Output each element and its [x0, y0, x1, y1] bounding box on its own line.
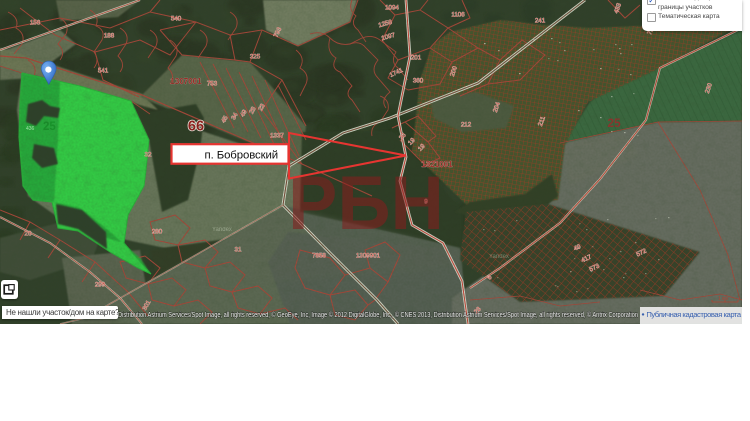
svg-text:п. Бобровский: п. Бобровский — [205, 149, 279, 161]
svg-text:1 км: 1 км — [718, 296, 728, 302]
svg-text:Distribution Astrium Services/: Distribution Astrium Services/Spot Image… — [118, 311, 638, 319]
